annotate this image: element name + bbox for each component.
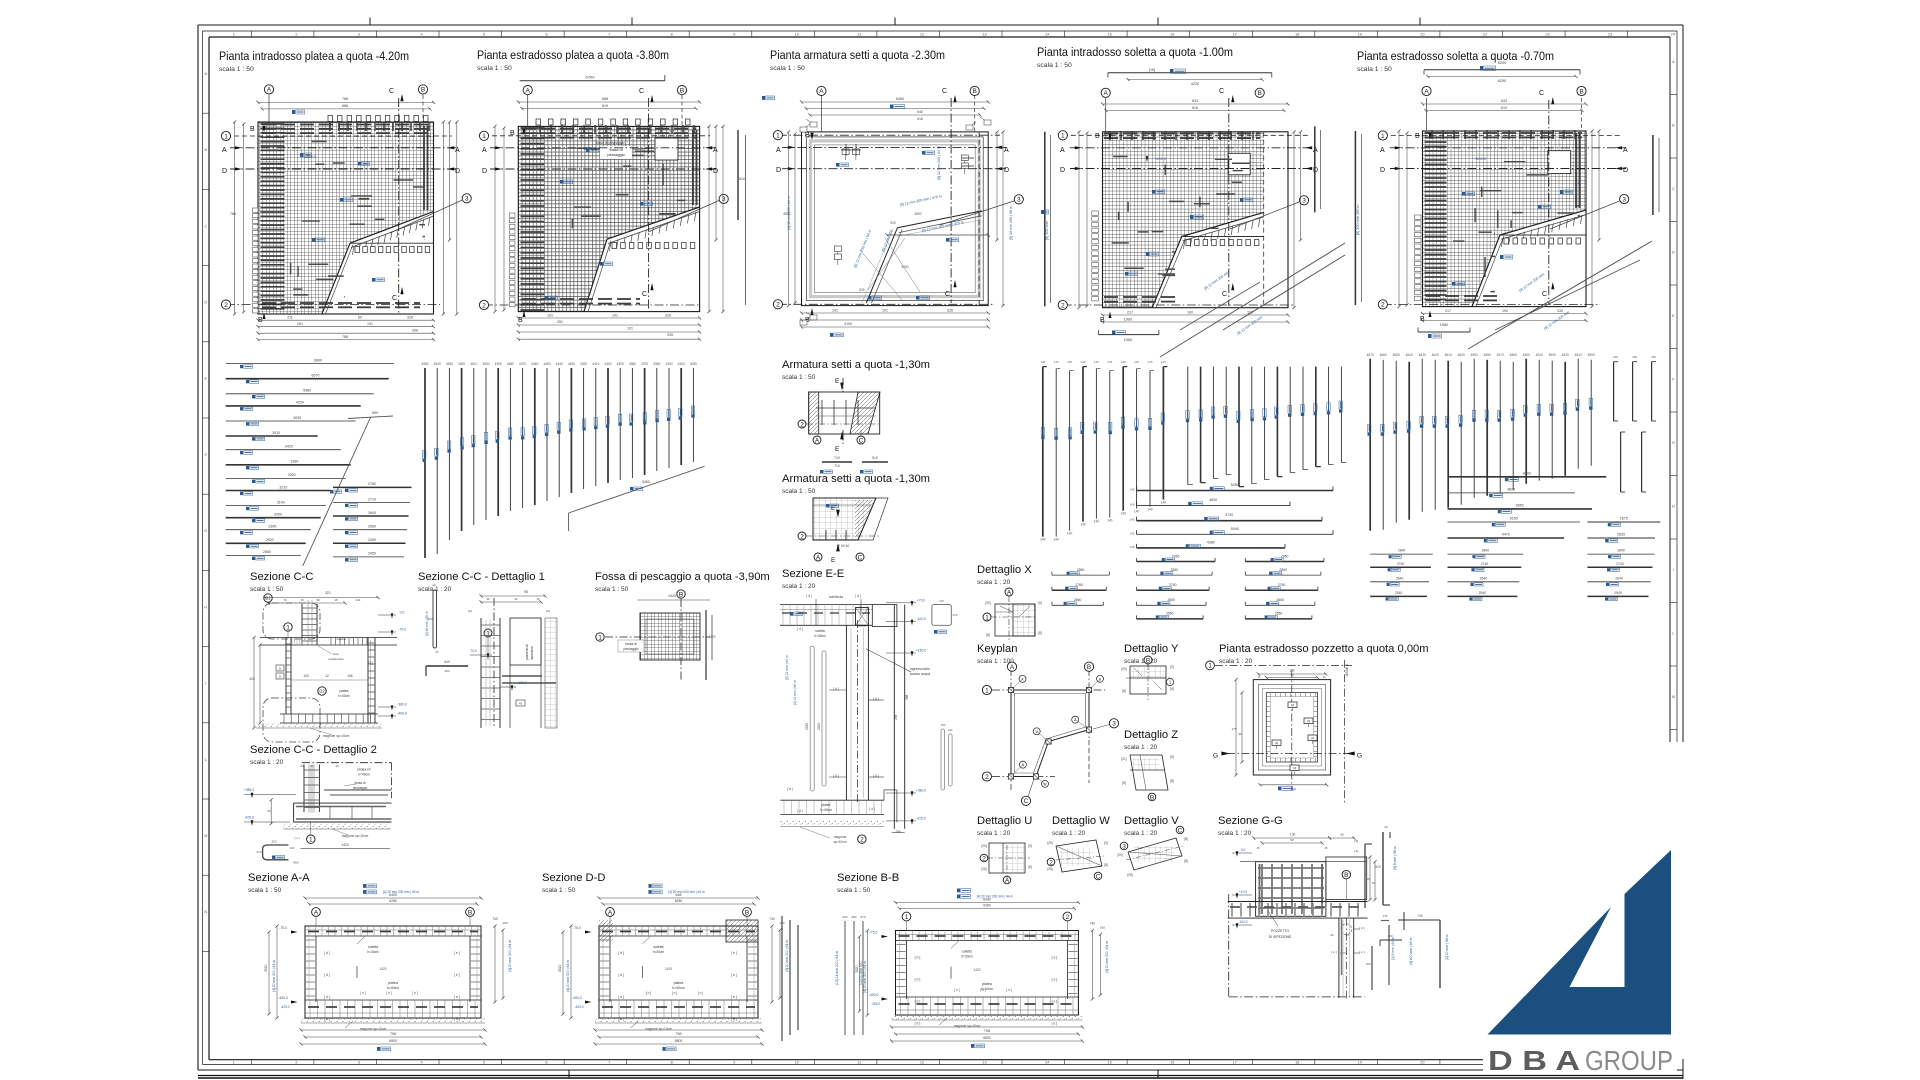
svg-text:B: B — [1095, 133, 1100, 140]
svg-text:h=40cm: h=40cm — [672, 986, 684, 990]
svg-text:magrone sp=10cm: magrone sp=10cm — [645, 1027, 672, 1031]
svg-text:[d]: [d] — [1275, 741, 1278, 745]
svg-text:15: 15 — [1107, 33, 1111, 37]
svg-text:60: 60 — [358, 316, 362, 320]
svg-text:4330: 4330 — [690, 362, 697, 366]
svg-text:140: 140 — [1080, 523, 1086, 527]
svg-text:ingresso tubo: ingresso tubo — [910, 667, 930, 671]
svg-text:5150: 5150 — [1510, 517, 1518, 521]
svg-text:1: 1 — [233, 1061, 235, 1065]
svg-text:[21]: [21] — [1121, 757, 1126, 761]
svg-text:A: A — [1623, 147, 1628, 154]
svg-text:2: 2 — [224, 302, 228, 309]
svg-text:magrone sp=10cm: magrone sp=10cm — [360, 1027, 387, 1031]
svg-text:2560: 2560 — [368, 525, 376, 529]
svg-text:217: 217 — [1445, 309, 1451, 313]
svg-text:[d]: [d] — [1307, 719, 1310, 723]
svg-text:5: 5 — [483, 1061, 485, 1065]
svg-text:2: 2 — [776, 302, 780, 309]
svg-text:60: 60 — [1340, 833, 1344, 837]
svg-text:A: A — [1672, 60, 1675, 64]
svg-text:[8]: [8] — [1122, 689, 1126, 693]
svg-text:-425,0: -425,0 — [871, 1002, 880, 1006]
svg-text:1: 1 — [905, 914, 909, 921]
svg-text:C: C — [859, 437, 864, 444]
svg-text:145: 145 — [1383, 914, 1388, 918]
svg-text:4570: 4570 — [1497, 353, 1504, 357]
svg-text:10: 10 — [795, 33, 799, 37]
svg-text:21: 21 — [1483, 33, 1487, 37]
svg-text:2490: 2490 — [368, 538, 376, 542]
svg-text:A: A — [482, 147, 487, 154]
svg-text:156: 156 — [347, 674, 353, 678]
svg-text:[9] 80 mm | 98 m: [9] 80 mm | 98 m — [425, 611, 429, 636]
svg-text:2740: 2740 — [1616, 562, 1624, 566]
svg-text:pescaggio: pescaggio — [607, 153, 624, 157]
svg-text:145: 145 — [1134, 360, 1139, 364]
svg-text:[ d ]: [ d ] — [869, 807, 874, 811]
svg-text:2: 2 — [482, 302, 486, 309]
svg-text:Dettaglio X: Dettaglio X — [977, 564, 1032, 576]
svg-text:4500: 4500 — [482, 362, 489, 366]
svg-text:15: 15 — [536, 597, 540, 601]
svg-text:-425,0: -425,0 — [916, 816, 926, 820]
svg-text:4340: 4340 — [678, 362, 685, 366]
svg-text:3: 3 — [358, 33, 360, 37]
svg-text:[4] 20 mm 300 | 64 m: [4] 20 mm 300 | 64 m — [508, 940, 512, 972]
svg-text:6280: 6280 — [675, 899, 683, 903]
svg-text:2: 2 — [860, 836, 864, 843]
svg-text:6280: 6280 — [983, 904, 991, 908]
svg-text:2: 2 — [1049, 859, 1053, 866]
svg-text:platea: platea — [388, 981, 398, 985]
svg-text:D: D — [1672, 251, 1675, 255]
svg-text:65: 65 — [1366, 877, 1370, 881]
svg-text:C: C — [1024, 798, 1029, 805]
svg-text:9: 9 — [733, 33, 735, 37]
svg-text:[ d ]: [ d ] — [833, 687, 838, 691]
svg-text:217: 217 — [1127, 311, 1133, 315]
svg-text:980: 980 — [851, 915, 856, 919]
svg-text:335: 335 — [667, 333, 673, 337]
svg-text:1: 1 — [309, 837, 313, 844]
svg-text:5040: 5040 — [1231, 527, 1239, 531]
svg-text:328: 328 — [665, 314, 671, 318]
svg-text:2780: 2780 — [368, 482, 376, 486]
svg-text:C: C — [392, 295, 397, 302]
svg-text:B: B — [468, 909, 472, 916]
svg-text:20: 20 — [1384, 825, 1388, 829]
svg-text:251: 251 — [557, 320, 563, 324]
svg-text:[ n ]: [ n ] — [386, 991, 391, 995]
svg-text:2740: 2740 — [1397, 562, 1405, 566]
svg-text:1960: 1960 — [1124, 338, 1132, 342]
svg-text:633: 633 — [1192, 99, 1198, 103]
svg-text:[ e ]: [ e ] — [454, 995, 460, 999]
svg-text:soletta: soletta — [654, 945, 664, 949]
svg-text:[ d ]: [ d ] — [324, 973, 330, 977]
svg-text:18: 18 — [1295, 1061, 1299, 1065]
svg-text:145: 145 — [1107, 360, 1112, 364]
svg-text:[ e ]: [ e ] — [731, 1017, 737, 1021]
svg-text:sp=10cm: sp=10cm — [833, 840, 846, 844]
svg-text:17: 17 — [1233, 1061, 1237, 1065]
svg-text:scala 1 : 20: scala 1 : 20 — [1124, 830, 1158, 837]
svg-text:[d]: [d] — [1311, 736, 1314, 740]
svg-text:2740: 2740 — [1481, 562, 1489, 566]
svg-text:scala 1 : 20: scala 1 : 20 — [1124, 744, 1158, 751]
svg-text:4890: 4890 — [1507, 488, 1515, 492]
svg-text:GROUP: GROUP — [1585, 1045, 1673, 1076]
svg-text:[16]: [16] — [1149, 68, 1155, 72]
svg-text:6800: 6800 — [675, 1039, 683, 1043]
svg-text:2920: 2920 — [266, 538, 274, 542]
svg-text:[4] 20 mm 300 | 64 m: [4] 20 mm 300 | 64 m — [1105, 941, 1109, 973]
svg-text:2760: 2760 — [1278, 583, 1286, 587]
svg-text:4530: 4530 — [293, 416, 301, 420]
svg-text:4580: 4580 — [1484, 353, 1491, 357]
svg-text:A: A — [816, 554, 821, 561]
svg-text:B: B — [679, 591, 683, 598]
svg-text:A: A — [526, 87, 531, 94]
svg-text:145: 145 — [1080, 360, 1085, 364]
svg-text:22: 22 — [1545, 33, 1549, 37]
svg-text:B: B — [1415, 133, 1420, 140]
svg-text:platea: platea — [674, 981, 684, 985]
svg-text:scala 1 : 50: scala 1 : 50 — [250, 586, 284, 593]
svg-text:1: 1 — [776, 133, 780, 140]
svg-text:4380: 4380 — [629, 362, 636, 366]
svg-text:[ d ]: [ d ] — [915, 956, 921, 960]
svg-text:pescaggio: pescaggio — [353, 786, 368, 790]
svg-text:[ d ]: [ d ] — [618, 995, 624, 999]
svg-text:Dettaglio W: Dettaglio W — [1052, 815, 1110, 827]
svg-text:20: 20 — [300, 764, 304, 768]
svg-text:[9]: [9] — [546, 609, 550, 613]
svg-text:magrone sp=10cm: magrone sp=10cm — [323, 734, 350, 738]
svg-text:[9]: [9] — [1170, 755, 1174, 759]
svg-text:D: D — [1060, 167, 1065, 174]
svg-text:-75,0: -75,0 — [279, 926, 287, 930]
svg-text:L: L — [1672, 632, 1674, 636]
svg-text:Pianta estradosso platea a quo: Pianta estradosso platea a quota -3.80m — [477, 48, 669, 62]
svg-text:145: 145 — [1161, 360, 1166, 364]
svg-text:14: 14 — [1045, 1061, 1049, 1065]
svg-text:2: 2 — [982, 855, 986, 862]
svg-text:2200: 2200 — [817, 723, 821, 730]
svg-text:210: 210 — [256, 850, 261, 854]
svg-text:90: 90 — [1290, 838, 1294, 842]
svg-text:820: 820 — [1375, 865, 1381, 869]
svg-text:20: 20 — [1420, 1061, 1424, 1065]
svg-text:scala 1 : 20: scala 1 : 20 — [418, 586, 452, 593]
svg-text:3: 3 — [722, 196, 726, 203]
svg-text:Dettaglio Y: Dettaglio Y — [1124, 643, 1179, 655]
svg-text:B: B — [1146, 657, 1150, 664]
svg-text:Sezione C-C - Dettaglio 2: Sezione C-C - Dettaglio 2 — [250, 744, 377, 756]
svg-text:[ d ]: [ d ] — [324, 1017, 330, 1021]
svg-text:-100,0: -100,0 — [916, 617, 926, 621]
svg-text:[ 4]: [ 4] — [1354, 849, 1358, 853]
svg-text:Pianta estradosso soletta a qu: Pianta estradosso soletta a quota -0.70m — [1357, 49, 1554, 63]
svg-text:4390: 4390 — [617, 362, 624, 366]
svg-text:16: 16 — [1170, 33, 1174, 37]
svg-text:1: 1 — [985, 614, 989, 621]
svg-text:6: 6 — [546, 1061, 548, 1065]
svg-text:1810: 1810 — [737, 177, 745, 181]
svg-text:328: 328 — [947, 309, 953, 313]
svg-text:+100,0: +100,0 — [1474, 156, 1487, 161]
svg-text:2235: 2235 — [805, 723, 809, 730]
svg-text:H: H — [1672, 505, 1675, 509]
svg-text:6800: 6800 — [983, 1036, 991, 1040]
svg-text:11: 11 — [857, 1061, 861, 1065]
svg-text:140: 140 — [1121, 512, 1127, 516]
svg-text:+70,0: +70,0 — [917, 598, 926, 602]
svg-text:E: E — [1672, 314, 1675, 318]
svg-text:2860: 2860 — [1279, 568, 1287, 572]
svg-text:+150,0: +150,0 — [916, 649, 926, 653]
svg-text:B: B — [805, 132, 810, 139]
svg-text:2: 2 — [1381, 302, 1385, 309]
svg-text:21: 21 — [278, 667, 282, 671]
svg-text:2540: 2540 — [1479, 591, 1487, 595]
svg-text:4540: 4540 — [434, 362, 441, 366]
svg-text:1: 1 — [482, 133, 486, 140]
svg-text:Armatura setti a quota -1,30m: Armatura setti a quota -1,30m — [782, 473, 930, 485]
svg-text:788: 788 — [230, 212, 236, 216]
svg-text:[ d ]: [ d ] — [873, 774, 878, 778]
svg-text:C: C — [1222, 291, 1227, 298]
svg-text:soletta: soletta — [368, 945, 378, 949]
svg-text:[ d ]: [ d ] — [797, 809, 802, 813]
svg-text:C: C — [1178, 827, 1183, 834]
svg-text:5: 5 — [483, 33, 485, 37]
svg-text:soletta: soletta — [336, 637, 345, 641]
svg-text:420: 420 — [249, 677, 255, 681]
svg-text:648: 648 — [917, 110, 923, 114]
svg-text:A: A — [1007, 589, 1012, 596]
svg-text:12: 12 — [325, 674, 329, 678]
svg-text:[20]: [20] — [1121, 667, 1126, 671]
svg-text:150: 150 — [1365, 962, 1370, 966]
svg-text:Sezione C-C - Dettaglio 1: Sezione C-C - Dettaglio 1 — [418, 571, 545, 583]
svg-text:I: I — [205, 682, 206, 686]
svg-text:990: 990 — [842, 915, 847, 919]
svg-text:2860: 2860 — [1077, 568, 1085, 572]
svg-text:C: C — [1219, 88, 1224, 95]
svg-text:145: 145 — [1129, 488, 1134, 492]
svg-text:20: 20 — [1420, 33, 1424, 37]
svg-text:C: C — [942, 88, 947, 95]
svg-text:17: 17 — [1233, 33, 1237, 37]
svg-text:1: 1 — [286, 624, 290, 631]
svg-text:2: 2 — [1061, 302, 1065, 309]
svg-text:1960: 1960 — [1124, 318, 1132, 322]
svg-text:DI ISPEZIONE: DI ISPEZIONE — [1269, 935, 1292, 939]
svg-text:B: B — [1579, 88, 1583, 95]
svg-text:145: 145 — [1054, 360, 1059, 364]
svg-text:[9]: [9] — [1038, 601, 1042, 605]
svg-text:2: 2 — [985, 774, 989, 781]
svg-text:D: D — [776, 167, 781, 174]
svg-text:Sezione B-B: Sezione B-B — [837, 872, 899, 884]
svg-text:Pianta estradosso pozzetto a q: Pianta estradosso pozzetto a quota 0,00m — [1219, 643, 1429, 655]
svg-text:3: 3 — [465, 196, 469, 203]
svg-text:6800: 6800 — [389, 1039, 397, 1043]
svg-text:39: 39 — [486, 597, 490, 601]
svg-text:fossa di: fossa di — [355, 781, 366, 785]
svg-text:B: B — [421, 87, 425, 94]
svg-text:B: B — [1150, 794, 1154, 801]
svg-text:15: 15 — [300, 598, 304, 602]
svg-text:[ e ]: [ e ] — [1052, 1022, 1058, 1026]
svg-text:C: C — [1542, 291, 1547, 298]
svg-text:650: 650 — [372, 411, 378, 415]
svg-text:B: B — [1258, 90, 1262, 97]
svg-text:G: G — [1213, 753, 1218, 760]
svg-text:0,0: 0,0 — [1241, 848, 1246, 852]
svg-text:633: 633 — [1501, 99, 1507, 103]
svg-text:h=40cm: h=40cm — [820, 808, 832, 812]
svg-text:[ n ]: [ n ] — [412, 991, 417, 995]
svg-text:15: 15 — [1107, 1061, 1111, 1065]
svg-text:C: C — [945, 291, 950, 298]
svg-text:C: C — [858, 554, 863, 561]
svg-text:[8]: [8] — [1170, 779, 1174, 783]
svg-text:[9]: [9] — [1104, 841, 1108, 845]
svg-text:2710: 2710 — [368, 497, 376, 501]
svg-text:190: 190 — [1100, 926, 1105, 930]
svg-text:[4] 14 mm | 98 m: [4] 14 mm | 98 m — [793, 680, 797, 705]
svg-text:[ n ]: [ n ] — [698, 991, 703, 995]
svg-text:4480: 4480 — [507, 362, 514, 366]
svg-text:798: 798 — [676, 1032, 682, 1036]
svg-text:960: 960 — [293, 860, 298, 864]
svg-text:Sezione C-C: Sezione C-C — [250, 571, 313, 583]
svg-text:3420: 3420 — [285, 445, 293, 449]
svg-text:Fossa di pescaggio a quota -3,: Fossa di pescaggio a quota -3,90m — [595, 571, 770, 583]
svg-text:A: A — [314, 909, 319, 916]
svg-text:20: 20 — [1330, 933, 1334, 937]
svg-text:A: A — [1010, 664, 1015, 671]
svg-text:140: 140 — [1134, 510, 1140, 514]
svg-text:101: 101 — [882, 309, 888, 313]
svg-text:130: 130 — [1290, 833, 1296, 837]
svg-text:-400,0: -400,0 — [397, 712, 407, 716]
svg-text:[ e ]: [ e ] — [1331, 950, 1336, 954]
svg-text:306: 306 — [412, 329, 418, 333]
svg-text:20: 20 — [435, 650, 439, 654]
svg-text:+380,0: +380,0 — [916, 789, 926, 793]
svg-text:scala 1 : 50: scala 1 : 50 — [1037, 62, 1072, 69]
svg-text:190: 190 — [502, 921, 507, 925]
svg-text:Armatura setti a quota -1,30m: Armatura setti a quota -1,30m — [782, 359, 930, 371]
svg-text:A: A — [1424, 88, 1429, 95]
svg-text:[ e ]: [ e ] — [1052, 956, 1058, 960]
svg-text:G: G — [1672, 441, 1675, 445]
svg-text:uscita tubo: uscita tubo — [329, 657, 344, 661]
svg-text:70: 70 — [283, 598, 287, 602]
svg-text:Pianta intradosso platea a quo: Pianta intradosso platea a quota -4.20m — [219, 49, 409, 63]
svg-text:3910: 3910 — [272, 431, 280, 435]
svg-text:2540: 2540 — [1614, 591, 1622, 595]
svg-text:[8]: [8] — [1184, 859, 1188, 863]
svg-text:magrone sp=10cm: magrone sp=10cm — [342, 834, 369, 838]
svg-text:D: D — [482, 168, 487, 175]
svg-text:3: 3 — [358, 1061, 360, 1065]
svg-text:C: C — [1672, 187, 1675, 191]
svg-text:90: 90 — [1238, 732, 1242, 736]
svg-text:[ n ]: [ n ] — [980, 988, 985, 992]
svg-text:340: 340 — [1387, 934, 1392, 938]
svg-text:[ e ]: [ e ] — [454, 951, 460, 955]
svg-text:Keyplan: Keyplan — [977, 643, 1017, 655]
svg-text:616: 616 — [1192, 106, 1198, 110]
svg-text:-100,0: -100,0 — [517, 681, 526, 685]
svg-text:[ e ]: [ e ] — [731, 973, 737, 977]
svg-text:5460: 5460 — [642, 480, 650, 484]
svg-text:C: C — [204, 224, 207, 228]
svg-text:A: A — [222, 147, 227, 154]
svg-text:G: G — [1357, 753, 1362, 760]
svg-text:619: 619 — [602, 104, 608, 108]
svg-text:D: D — [1380, 167, 1385, 174]
svg-text:[ d ]: [ d ] — [833, 774, 838, 778]
svg-text:4350: 4350 — [665, 362, 672, 366]
svg-text:[9]: [9] — [1170, 665, 1174, 669]
svg-text:C: C — [1096, 873, 1101, 880]
svg-text:M: M — [1672, 695, 1675, 699]
svg-text:[20]: [20] — [981, 844, 986, 848]
svg-text:140: 140 — [1067, 532, 1073, 536]
svg-text:[ n ]: [ n ] — [1006, 988, 1011, 992]
svg-text:1420: 1420 — [973, 968, 980, 972]
svg-text:[ d ]: [ d ] — [618, 973, 624, 977]
svg-text:5980: 5980 — [303, 389, 311, 393]
svg-text:2: 2 — [295, 1061, 297, 1065]
svg-text:328: 328 — [407, 316, 413, 320]
svg-text:4650: 4650 — [1393, 353, 1400, 357]
svg-text:Dettaglio U: Dettaglio U — [977, 815, 1032, 827]
svg-text:145: 145 — [1094, 360, 1099, 364]
svg-text:h=40cm: h=40cm — [387, 986, 399, 990]
svg-text:60: 60 — [267, 809, 271, 813]
svg-text:[ 6]: [ 6] — [1354, 839, 1358, 843]
svg-text:A: A — [608, 909, 613, 916]
svg-text:fossa di pescaggio: fossa di pescaggio — [596, 141, 625, 145]
svg-text:h=30cm: h=30cm — [367, 950, 379, 954]
svg-text:2540: 2540 — [1395, 591, 1403, 595]
svg-text:140: 140 — [948, 728, 953, 732]
svg-text:70: 70 — [1371, 881, 1375, 885]
svg-text:3260: 3260 — [288, 473, 296, 477]
svg-text:B: B — [745, 909, 749, 916]
svg-text:4490: 4490 — [495, 362, 502, 366]
svg-text:5260: 5260 — [1231, 483, 1239, 487]
svg-text:4400: 4400 — [604, 362, 611, 366]
svg-text:3: 3 — [1112, 721, 1116, 728]
svg-text:2840: 2840 — [1482, 549, 1490, 553]
svg-text:scala 1 : 20: scala 1 : 20 — [782, 583, 816, 590]
svg-text:[ e ]: [ e ] — [1359, 950, 1364, 954]
svg-text:1420: 1420 — [708, 635, 715, 639]
svg-text:foro: foro — [333, 652, 339, 656]
svg-text:Sezione G-G: Sezione G-G — [1218, 815, 1283, 827]
svg-text:[ d ]: [ d ] — [618, 1017, 624, 1021]
svg-text:140: 140 — [1094, 520, 1100, 524]
svg-text:A: A — [205, 72, 208, 76]
